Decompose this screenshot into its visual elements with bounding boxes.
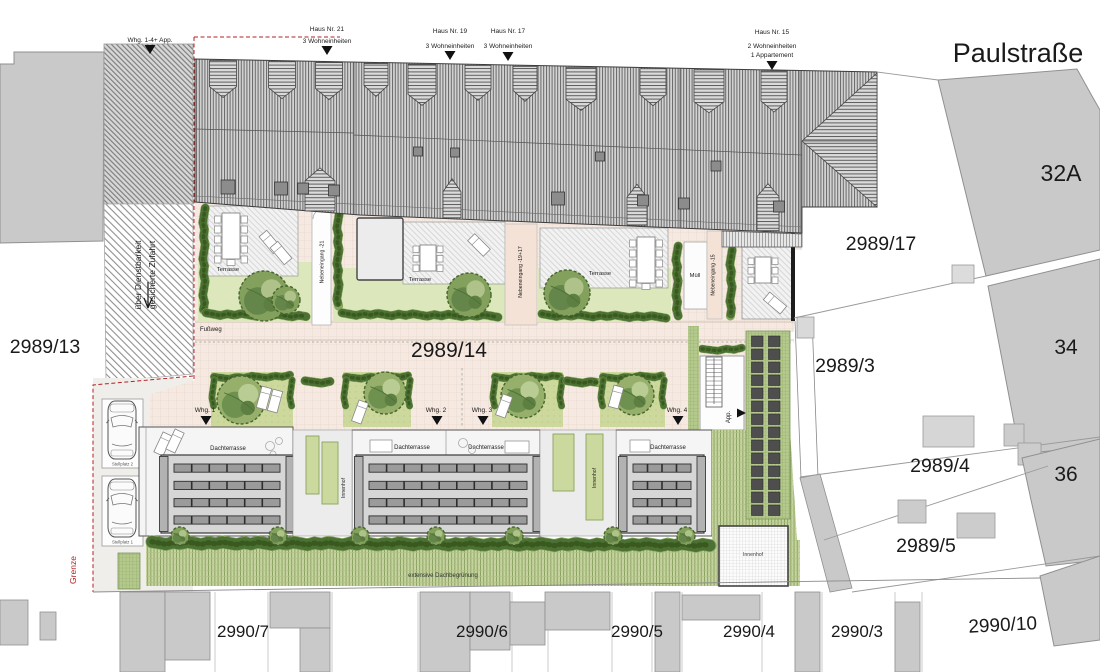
- svg-text:2989/3: 2989/3: [815, 355, 875, 377]
- svg-text:32A: 32A: [1041, 160, 1083, 186]
- svg-text:2990/7: 2990/7: [217, 622, 269, 641]
- svg-text:Stellplatz 1: Stellplatz 1: [112, 540, 134, 545]
- svg-text:Dachterrasse: Dachterrasse: [650, 445, 686, 451]
- svg-text:Müll: Müll: [690, 273, 701, 279]
- svg-text:Haus Nr. 21: Haus Nr. 21: [310, 26, 345, 33]
- svg-text:2989/5: 2989/5: [896, 535, 956, 557]
- svg-text:Nebeneingang -19+17: Nebeneingang -19+17: [518, 246, 524, 298]
- svg-text:Whg. 1: Whg. 1: [195, 407, 216, 414]
- svg-text:App.: App.: [726, 410, 732, 423]
- svg-text:3 Wohneinheiten: 3 Wohneinheiten: [426, 43, 475, 50]
- svg-text:3 Wohneinheiten: 3 Wohneinheiten: [303, 38, 352, 45]
- svg-text:Terrasse: Terrasse: [217, 267, 239, 273]
- svg-text:Haus Nr. 19: Haus Nr. 19: [433, 28, 468, 35]
- svg-text:2989/13: 2989/13: [10, 336, 81, 358]
- svg-text:2990/6: 2990/6: [456, 622, 508, 641]
- svg-text:2990/4: 2990/4: [723, 622, 775, 641]
- svg-text:Whg. 1-4+ App.: Whg. 1-4+ App.: [128, 37, 173, 44]
- svg-text:3 Wohneinheiten: 3 Wohneinheiten: [484, 43, 533, 50]
- svg-text:Grenze: Grenze: [68, 556, 78, 584]
- svg-text:2990/5: 2990/5: [611, 622, 663, 641]
- svg-text:1 Appartement: 1 Appartement: [751, 52, 793, 59]
- svg-text:2 Wohneinheiten: 2 Wohneinheiten: [748, 43, 797, 50]
- svg-text:extensive Dachbegrünung: extensive Dachbegrünung: [408, 573, 478, 579]
- svg-text:über Dienstbarkeit: über Dienstbarkeit: [133, 240, 143, 310]
- svg-text:Innenhof: Innenhof: [341, 477, 347, 498]
- svg-text:Dachterrasse: Dachterrasse: [394, 445, 430, 451]
- svg-text:Dachterrasse: Dachterrasse: [468, 445, 504, 451]
- svg-text:Nebeneingang -15: Nebeneingang -15: [711, 254, 717, 295]
- svg-text:2989/14: 2989/14: [411, 339, 487, 362]
- svg-text:Whg. 4: Whg. 4: [667, 407, 688, 414]
- svg-text:Whg. 3: Whg. 3: [472, 407, 493, 414]
- svg-text:Whg. 2: Whg. 2: [426, 407, 447, 414]
- svg-text:2990/3: 2990/3: [831, 622, 883, 641]
- svg-text:Nebeneingang -21: Nebeneingang -21: [320, 241, 326, 284]
- svg-text:Terrasse: Terrasse: [409, 277, 431, 283]
- svg-text:34: 34: [1054, 336, 1078, 359]
- svg-text:Terrasse: Terrasse: [589, 271, 611, 277]
- svg-text:Stellplatz 2: Stellplatz 2: [112, 462, 134, 467]
- svg-text:Innenhof: Innenhof: [743, 552, 764, 558]
- svg-text:Dachterrasse: Dachterrasse: [210, 446, 246, 452]
- svg-text:36: 36: [1054, 463, 1077, 486]
- svg-text:Haus Nr. 17: Haus Nr. 17: [491, 28, 526, 35]
- svg-text:Fußweg: Fußweg: [200, 327, 222, 333]
- svg-text:2990/10: 2990/10: [968, 613, 1038, 638]
- svg-text:Haus Nr. 15: Haus Nr. 15: [755, 29, 790, 36]
- svg-text:2989/4: 2989/4: [910, 455, 970, 477]
- svg-text:Innenhof: Innenhof: [592, 467, 598, 488]
- svg-text:Paulstraße: Paulstraße: [953, 38, 1084, 68]
- svg-text:2989/17: 2989/17: [846, 233, 917, 255]
